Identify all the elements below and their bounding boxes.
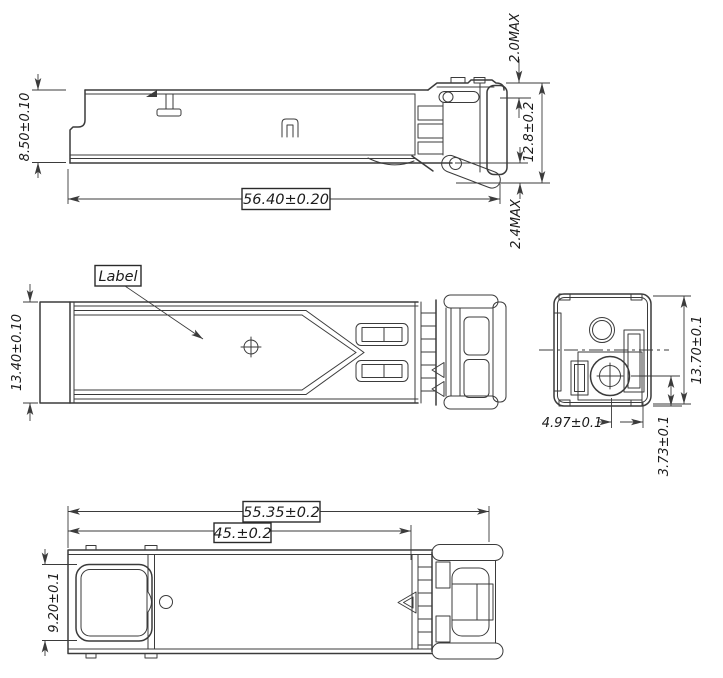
triangle-marker [432,382,444,397]
dim-ferrule-y-label: 3.73±0.1 [657,416,672,477]
pcb-opening [76,565,152,642]
dim-bail-drop-label: 2.4MAX [509,198,524,249]
dim-bottom-body-length-label: 45.±0.2 [213,526,271,542]
dim-side-length: 56.40±0.20 [68,169,500,210]
top-view: Label 13.40±0.10 [10,266,506,422]
dim-opening-width-label: 9.20±0.1 [47,572,62,633]
side-view: 8.50±0.10 56.40±0.20 2.0MAX 12.8±0.2 2. [18,12,550,249]
dim-top-width: 13.40±0.10 [10,284,38,421]
dim-front-height: 13.70±0.1 [653,296,705,404]
dim-top-width-label: 13.40±0.10 [10,314,25,391]
dim-latch-height-label: 2.0MAX [508,12,523,63]
top-view-outline [40,295,506,409]
dim-bail-drop: 2.4MAX [455,147,528,249]
bottom-view: 55.35±0.2 45.±0.2 9.20±0.1 [42,502,503,660]
bottom-view-outline [68,545,503,660]
dim-side-height-label: 8.50±0.10 [18,93,33,162]
sfp-mechanical-drawing: 8.50±0.10 56.40±0.20 2.0MAX 12.8±0.2 2. [0,0,723,678]
dim-overall-height-side-label: 12.8±0.2 [522,102,537,163]
dim-opening-width: 9.20±0.1 [42,549,77,656]
front-view: 13.70±0.1 4.97±0.1 3.73±0.1 [539,294,705,476]
dim-side-length-label: 56.40±0.20 [243,192,329,208]
alignment-hole [590,318,615,343]
engineering-drawing-page: 8.50±0.10 56.40±0.20 2.0MAX 12.8±0.2 2. [0,0,723,678]
side-view-outline [70,78,507,189]
dim-side-height: 8.50±0.10 [18,74,66,178]
dim-ferrule-x-label: 4.97±0.1 [542,416,603,431]
dim-ferrule-y: 3.73±0.1 [631,376,682,476]
dim-front-height-label: 13.70±0.1 [690,316,705,385]
dim-bottom-overall-length-label: 55.35±0.2 [243,505,320,521]
label-callout-text: Label [98,269,137,285]
front-view-outline [539,294,669,406]
dim-bottom-overall-length: 55.35±0.2 [68,502,489,549]
